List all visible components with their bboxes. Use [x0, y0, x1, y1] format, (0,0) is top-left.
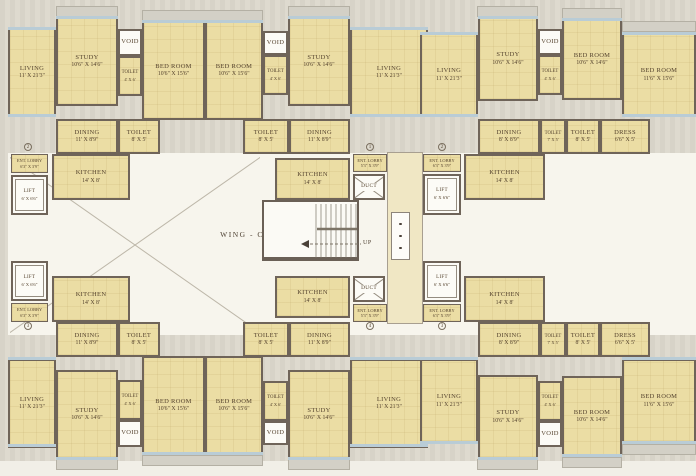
- room-kitchen: KITCHEN14' X 8': [52, 154, 130, 200]
- room-bed-room: BED ROOM11'6" X 15'6": [622, 359, 696, 443]
- room-name: LIVING: [20, 396, 44, 405]
- room-name: BED ROOM: [641, 67, 678, 76]
- room-dims: 5'3" X 3'9": [361, 313, 379, 318]
- room-dims: 8' X 5': [132, 340, 147, 347]
- room-name: TOILET: [127, 332, 151, 341]
- room-dims: 8' X 5': [576, 340, 591, 347]
- room-dims: 6'3" X 3'9": [20, 313, 38, 318]
- room-void: VOID: [538, 29, 562, 55]
- room-dims: 6' X 6'6": [434, 282, 450, 288]
- room-toilet: TOILET7' X 5': [540, 322, 566, 357]
- room-duct: DUCT: [353, 276, 385, 302]
- room-name: TOILET: [254, 332, 278, 341]
- room-name: DRESS: [614, 332, 636, 341]
- room-name: BED ROOM: [574, 409, 611, 418]
- room-toilet: TOILET8' X 5': [243, 322, 289, 357]
- room-dims: 14' X 8': [304, 298, 322, 305]
- room-toilet: TOILET4' X 6': [538, 381, 562, 421]
- balcony-slab: [622, 21, 696, 32]
- window-strip: [8, 27, 56, 30]
- room-name: DINING: [75, 129, 100, 138]
- balcony-slab: [622, 444, 696, 455]
- window-strip: [8, 444, 56, 447]
- balcony-slab: [562, 457, 622, 468]
- room-living: LIVING11' X 21'3": [350, 359, 428, 448]
- room-void: VOID: [263, 421, 288, 445]
- room-name: LIVING: [437, 393, 461, 402]
- room-dims: 8' X 5': [259, 340, 274, 347]
- window-strip: [350, 444, 428, 447]
- room-dims: 8' X 5': [259, 137, 274, 144]
- dot: [399, 235, 402, 238]
- room-name: TOILET: [127, 129, 151, 138]
- room-dims: 6' X 6'6": [434, 195, 450, 201]
- room-bed-room: BED ROOM10'6" X 15'6": [142, 21, 205, 120]
- room-dining: DINING8' X 8'9": [478, 322, 540, 357]
- dot: [399, 223, 402, 226]
- room-study: STUDY10'6" X 14'6": [56, 370, 118, 459]
- room-name: LIFT: [24, 275, 36, 282]
- room-name: LIVING: [377, 65, 401, 74]
- room-dims: 10'6" X 14'6": [71, 415, 102, 422]
- room-lift: LIFT6' X 6'6": [423, 174, 461, 215]
- window-strip: [350, 357, 428, 360]
- window-strip: [56, 457, 118, 460]
- room-toilet: TOILET8' X 5': [118, 119, 160, 154]
- room-name: KITCHEN: [297, 171, 328, 180]
- room-name: BED ROOM: [574, 52, 611, 61]
- room-dress: DRESS6'6" X 5': [600, 119, 650, 154]
- room-dims: 8' X 8'9": [499, 137, 519, 144]
- room-dining: DINING11' X 8'9": [56, 322, 118, 357]
- room-lift: LIFT6' X 6'6": [11, 261, 48, 301]
- room-lift: LIFT6' X 6'6": [423, 261, 461, 302]
- room-dims: 10'6" X 14'6": [492, 60, 523, 67]
- room-toilet: TOILET8' X 5': [566, 119, 600, 154]
- room-ent-lobby: ENT. LOBBY6'3" X 3'9": [423, 154, 461, 172]
- room-study: STUDY10'6" X 14'6": [56, 17, 118, 106]
- room-dims: 4' X 6': [124, 77, 135, 82]
- room-dims: 11' X 8'9": [308, 340, 331, 347]
- room-toilet: TOILET8' X 5': [566, 322, 600, 357]
- room-living: LIVING11' X 21'3": [420, 33, 478, 117]
- window-strip: [350, 114, 428, 117]
- window-strip: [478, 457, 538, 460]
- room-name: LIVING: [377, 396, 401, 405]
- room-dims: 14' X 8': [496, 300, 514, 307]
- window-strip: [420, 114, 478, 117]
- room-living: LIVING11' X 21'3": [420, 359, 478, 443]
- room-name: TOILET: [571, 332, 595, 341]
- room-toilet: TOILET4' X 6': [118, 56, 142, 96]
- balcony-slab: [288, 459, 350, 470]
- room-dims: 11' X 21'3": [19, 73, 45, 80]
- room-dress: DRESS6'6" X 5': [600, 322, 650, 357]
- room-dims: 10'6" X 15'6": [158, 71, 189, 78]
- room-study: STUDY10'6" X 14'6": [288, 370, 350, 459]
- room-ent-lobby: ENT. LOBBY6'3" X 3'9": [11, 154, 48, 173]
- window-strip: [205, 20, 263, 23]
- room-dims: 10'6" X 14'6": [492, 418, 523, 425]
- room-name: VOID: [267, 429, 284, 438]
- room-name: DINING: [497, 129, 522, 138]
- room-name: BED ROOM: [216, 63, 253, 72]
- window-strip: [622, 357, 696, 360]
- room-dims: 7' X 5': [547, 340, 558, 345]
- room-toilet: TOILET8' X 5': [118, 322, 160, 357]
- room-study: STUDY10'6" X 14'6": [478, 375, 538, 459]
- room-living: LIVING11' X 21'3": [350, 28, 428, 117]
- balcony-slab: [477, 459, 538, 470]
- room-dims: 6'6" X 5': [615, 340, 635, 347]
- room-name: LIFT: [436, 188, 448, 195]
- room-lift: LIFT6' X 6'6": [11, 175, 48, 215]
- room-name: BED ROOM: [155, 398, 192, 407]
- room-dims: 14' X 8': [82, 300, 100, 307]
- dot: [399, 247, 402, 250]
- window-strip: [562, 18, 622, 21]
- room-name: DINING: [307, 129, 332, 138]
- window-strip: [288, 457, 350, 460]
- balcony-slab: [56, 459, 118, 470]
- room-name: VOID: [541, 430, 558, 439]
- room-name: VOID: [121, 429, 138, 438]
- room-dims: 10'6" X 14'6": [303, 415, 334, 422]
- room-name: DRESS: [614, 129, 636, 138]
- room-name: VOID: [267, 39, 284, 48]
- room-dims: 11'6" X 15'6": [643, 76, 674, 83]
- room-dims: 6'3" X 3'9": [433, 313, 451, 318]
- room-name: DINING: [75, 332, 100, 341]
- room-dims: 11' X 8'9": [308, 137, 331, 144]
- flat-number: 2: [24, 143, 32, 151]
- window-strip: [142, 452, 205, 455]
- room-name: DINING: [307, 332, 332, 341]
- flat-number: 3: [24, 322, 32, 330]
- window-strip: [420, 32, 478, 35]
- room-ent-lobby: ENT. LOBBY5'3" X 3'9": [353, 154, 387, 172]
- room-bed-room: BED ROOM10'6" X 14'6": [562, 376, 622, 457]
- room-name: STUDY: [496, 409, 519, 418]
- room-name: DUCT: [359, 285, 379, 292]
- window-strip: [562, 454, 622, 457]
- room-toilet: TOILET4' X 6': [263, 381, 288, 421]
- stairs-up-label: UP: [363, 240, 372, 246]
- room-dims: 4' X 6': [124, 401, 135, 406]
- room-study: STUDY10'6" X 14'6": [288, 17, 350, 106]
- room-name: BED ROOM: [641, 393, 678, 402]
- room-void: VOID: [118, 29, 142, 56]
- room-dims: 14' X 8': [496, 178, 514, 185]
- room-dims: 6' X 6'6": [21, 196, 37, 202]
- window-strip: [56, 16, 118, 19]
- room-dims: 10'6" X 15'6": [158, 406, 189, 413]
- flat-number: 3: [438, 322, 446, 330]
- room-name: STUDY: [496, 51, 519, 60]
- room-name: KITCHEN: [297, 289, 328, 298]
- window-strip: [420, 441, 478, 444]
- room-dining: DINING8' X 8'9": [478, 119, 540, 154]
- room-bed-room: BED ROOM10'6" X 15'6": [205, 21, 263, 120]
- room-kitchen: KITCHEN14' X 8': [52, 276, 130, 322]
- room-dims: 4' X 6': [544, 76, 555, 81]
- window-strip: [8, 114, 56, 117]
- room-dims: 14' X 8': [82, 178, 100, 185]
- window-strip: [8, 357, 56, 360]
- room-dims: 7' X 5': [547, 137, 558, 142]
- window-strip: [622, 114, 696, 117]
- room-bed-room: BED ROOM10'6" X 14'6": [562, 19, 622, 100]
- room-dims: 14' X 8': [304, 180, 322, 187]
- room-name: VOID: [121, 38, 138, 47]
- room-name: LIVING: [20, 65, 44, 74]
- room-ent-lobby: ENT. LOBBY6'3" X 3'9": [423, 304, 461, 322]
- room-dims: 10'6" X 14'6": [576, 60, 607, 67]
- room-bed-room: BED ROOM11'6" X 15'6": [622, 33, 696, 117]
- room-dims: 11' X 21'3": [436, 402, 462, 409]
- window-strip: [622, 32, 696, 35]
- room-study: STUDY10'6" X 14'6": [478, 17, 538, 101]
- room-toilet: TOILET4' X 6': [538, 55, 562, 95]
- room-dims: 10'6" X 15'6": [218, 406, 249, 413]
- room-name: LIVING: [437, 67, 461, 76]
- room-dims: 8' X 5': [576, 137, 591, 144]
- window-strip: [622, 441, 696, 444]
- floor-plan: LIVING11' X 21'3"STUDY10'6" X 14'6"VOIDT…: [0, 0, 696, 476]
- room-toilet: TOILET4' X 6': [263, 55, 288, 95]
- room-dims: 10'6" X 14'6": [303, 62, 334, 69]
- room-dims: 10'6" X 14'6": [576, 417, 607, 424]
- room-dining: DINING11' X 8'9": [289, 119, 350, 154]
- room-toilet: TOILET7' X 5': [540, 119, 566, 154]
- balcony-slab: [142, 455, 263, 466]
- window-strip: [420, 357, 478, 360]
- flat-number: 1: [366, 143, 374, 151]
- window-strip: [288, 16, 350, 19]
- room-living: LIVING11' X 21'3": [8, 359, 56, 448]
- room-bed-room: BED ROOM10'6" X 15'6": [142, 356, 205, 455]
- window-strip: [142, 20, 205, 23]
- room-toilet: TOILET8' X 5': [243, 119, 289, 154]
- room-dims: 11' X 8'9": [76, 340, 99, 347]
- window-strip: [478, 16, 538, 19]
- room-name: STUDY: [75, 407, 98, 416]
- room-dims: 8' X 8'9": [499, 340, 519, 347]
- room-dims: 4' X 6': [270, 76, 281, 81]
- room-dims: 4' X 6': [270, 402, 281, 407]
- flat-number: 2: [438, 143, 446, 151]
- room-kitchen: KITCHEN14' X 8': [464, 154, 545, 200]
- room-dims: 6'3" X 3'9": [433, 163, 451, 168]
- room-kitchen: KITCHEN14' X 8': [275, 158, 350, 200]
- room-void: VOID: [118, 420, 142, 447]
- room-dims: 11' X 8'9": [76, 137, 99, 144]
- room-name: DINING: [497, 332, 522, 341]
- wing-title: WING - C: [204, 230, 280, 239]
- room-bed-room: BED ROOM10'6" X 15'6": [205, 356, 263, 455]
- room-dims: 8' X 5': [132, 137, 147, 144]
- room-dims: 6' X 6'6": [21, 282, 37, 288]
- room-dims: 11' X 21'3": [376, 73, 402, 80]
- room-dims: 6'3" X 3'9": [20, 164, 38, 169]
- flat-number: 4: [366, 322, 374, 330]
- room-name: DUCT: [359, 183, 379, 190]
- room-toilet: TOILET4' X 6': [118, 380, 142, 420]
- room-dims: 11' X 21'3": [436, 76, 462, 83]
- room-name: STUDY: [307, 407, 330, 416]
- room-ent-lobby: ENT. LOBBY6'3" X 3'9": [11, 303, 48, 322]
- room-living: LIVING11' X 21'3": [8, 28, 56, 117]
- room-name: KITCHEN: [489, 291, 520, 300]
- room-dims: 11' X 21'3": [376, 404, 402, 411]
- room-name: BED ROOM: [216, 398, 253, 407]
- room-dims: 11' X 21'3": [19, 404, 45, 411]
- room-name: KITCHEN: [76, 291, 107, 300]
- room-dims: 11'6" X 15'6": [643, 402, 674, 409]
- room-dims: 4' X 6': [544, 402, 555, 407]
- room-name: LIFT: [24, 189, 36, 196]
- room-name: STUDY: [307, 54, 330, 63]
- room-dims: 5'3" X 3'9": [361, 163, 379, 168]
- room-name: VOID: [541, 38, 558, 47]
- room-ent-lobby: ENT. LOBBY5'3" X 3'9": [353, 304, 387, 322]
- room-void: VOID: [263, 31, 288, 55]
- room-kitchen: KITCHEN14' X 8': [464, 276, 545, 322]
- room-dining: DINING11' X 8'9": [289, 322, 350, 357]
- room-name: KITCHEN: [76, 169, 107, 178]
- room-name: TOILET: [571, 129, 595, 138]
- window-strip: [350, 27, 428, 30]
- room-name: STUDY: [75, 54, 98, 63]
- room-void: VOID: [538, 421, 562, 447]
- room-dims: 10'6" X 15'6": [218, 71, 249, 78]
- room-dims: 6'6" X 5': [615, 137, 635, 144]
- passage-marker: [391, 212, 410, 260]
- room-name: LIFT: [436, 275, 448, 282]
- room-name: BED ROOM: [155, 63, 192, 72]
- room-kitchen: KITCHEN14' X 8': [275, 276, 350, 318]
- room-duct: DUCT: [353, 174, 385, 200]
- room-dining: DINING11' X 8'9": [56, 119, 118, 154]
- room-name: KITCHEN: [489, 169, 520, 178]
- window-strip: [205, 452, 263, 455]
- room-name: TOILET: [254, 129, 278, 138]
- room-dims: 10'6" X 14'6": [71, 62, 102, 69]
